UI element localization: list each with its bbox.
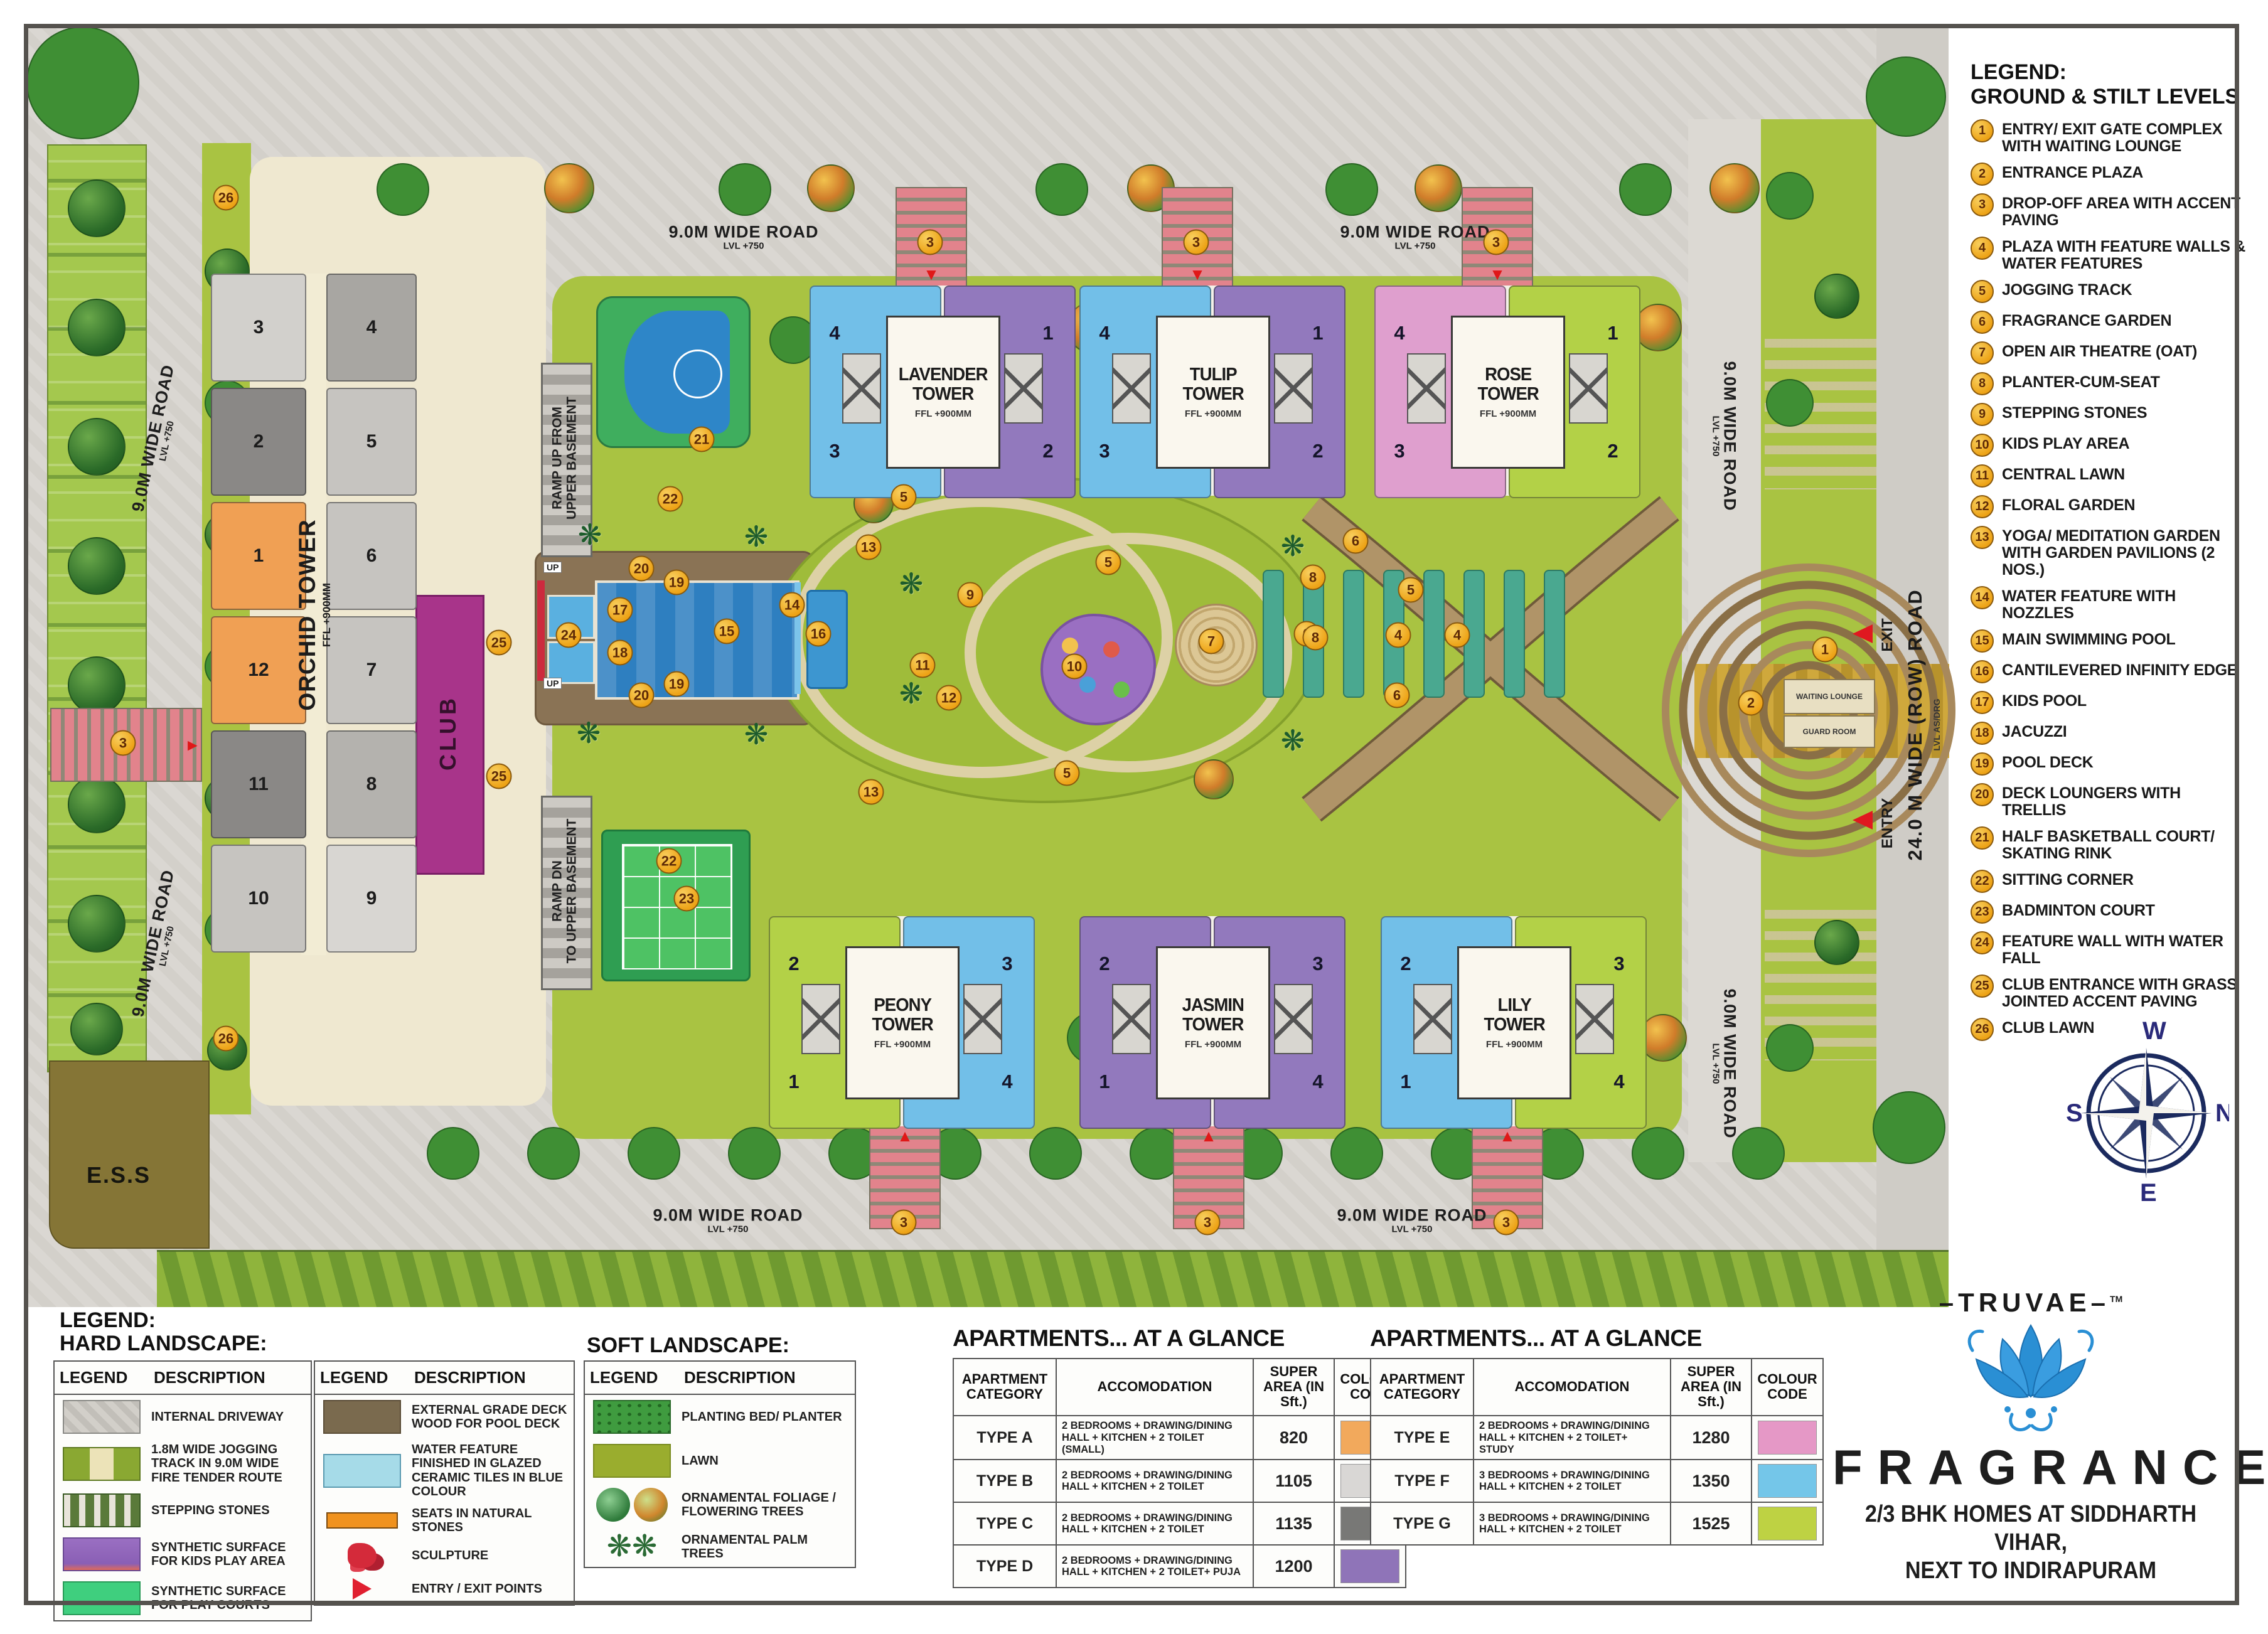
tree-icon (70, 1003, 123, 1055)
lotus-logo-icon (1959, 1320, 2103, 1439)
apartments-table-2: APARTMENTS... AT A GLANCEAPARTMENT CATEG… (1370, 1325, 1824, 1546)
tree-icon (1415, 164, 1462, 212)
apartments-row: TYPE D2 BEDROOMS + DRAWING/DINING HALL +… (953, 1545, 1406, 1588)
orchid-wing: 9 (326, 845, 417, 953)
plan-marker: 25 (486, 630, 512, 656)
road-label: 9.0M WIDE ROADLVL +750 (1711, 361, 1738, 511)
plan-marker: 10 (1062, 654, 1088, 680)
plan-marker: 19 (664, 570, 690, 595)
col-description: DESCRIPTION (679, 1362, 855, 1394)
tree-icon (1866, 56, 1946, 137)
super-area-cell: 1525 (1671, 1502, 1752, 1545)
tower-name: ROSETOWER (1477, 365, 1538, 403)
legend-item: 10KIDS PLAY AREA (1971, 434, 2245, 457)
legend-item-label: PLAZA WITH FEATURE WALLS & WATER FEATURE… (2002, 237, 2245, 272)
orchid-wing: 1 (211, 502, 306, 610)
super-area-cell: 1350 (1671, 1460, 1752, 1502)
category-cell: TYPE B (953, 1460, 1056, 1502)
legend-marker-icon: 13 (1971, 526, 1994, 549)
legend-row-label: LAWN (679, 1450, 855, 1471)
orchid-wing: 8 (326, 730, 417, 838)
legend-panel-header: LEGENDDESCRIPTION (585, 1362, 855, 1395)
soft-landscape-title: SOFT LANDSCAPE: (587, 1334, 789, 1357)
apartments-col-header: ACCOMODATION (1474, 1359, 1671, 1416)
hard-title-1: LEGEND: (60, 1309, 267, 1332)
legend-row-label: STEPPING STONES (149, 1500, 311, 1521)
entry-exit-arrow-icon (353, 1578, 372, 1599)
tower-lily-tower: LILYTOWERFFL +900MM2314 (1381, 916, 1644, 1126)
tower-core: TULIPTOWERFFL +900MM (1156, 316, 1270, 469)
plan-marker: 3 (917, 230, 943, 255)
tree-icon (68, 179, 126, 237)
planter-cum-seat (1544, 570, 1565, 698)
legend-marker-icon: 17 (1971, 691, 1994, 714)
legend-item: 2ENTRANCE PLAZA (1971, 163, 2245, 186)
tree-icon (728, 1127, 781, 1180)
legend-item: 15MAIN SWIMMING POOL (1971, 629, 2245, 653)
legend-item-label: JOGGING TRACK (2002, 280, 2132, 299)
tree-icon (807, 164, 855, 212)
soft-landscape-panel: LEGENDDESCRIPTIONPLANTING BED/ PLANTERLA… (584, 1360, 856, 1568)
palm-tree-icon: ❋ (899, 567, 924, 601)
guard-room: GUARD ROOM (1784, 715, 1875, 748)
apartments-table-1: APARTMENTS... AT A GLANCEAPARTMENT CATEG… (953, 1325, 1406, 1588)
tree-icon (1330, 1127, 1383, 1180)
apartments-col-header: COLOUR CODE (1752, 1359, 1823, 1416)
tower-core: ROSETOWERFFL +900MM (1451, 316, 1565, 469)
play-equipment-icon (1062, 638, 1078, 654)
palm-tree-icon: ❋ (578, 518, 602, 552)
road-label: 9.0M WIDE ROADLVL +750 (1711, 988, 1738, 1138)
plan-marker: 3 (110, 730, 136, 756)
wing-number: 1 (780, 1071, 808, 1093)
plan-marker: 23 (674, 886, 700, 912)
colour-code-swatch (1758, 1421, 1817, 1455)
plan-marker: 21 (689, 427, 715, 452)
lift-core-icon (1407, 353, 1446, 424)
plan-marker: 2 (1738, 690, 1764, 716)
legend-row-label: PLANTING BED/ PLANTER (679, 1406, 855, 1428)
plan-marker: 3 (891, 1210, 917, 1236)
legend-marker-icon: 26 (1971, 1018, 1994, 1041)
legend-row: LAWN (585, 1439, 855, 1483)
legend-item: 3DROP-OFF AREA WITH ACCENT PAVING (1971, 193, 2245, 229)
legend-item-label: HALF BASKETBALL COURT/ SKATING RINK (2002, 826, 2245, 862)
ess-area (49, 1060, 210, 1249)
plan-marker: 22 (656, 848, 682, 874)
legend-marker-icon: 6 (1971, 311, 1994, 334)
plan-marker: 3 (1184, 230, 1209, 255)
road-label: 9.0M WIDE ROADLVL +750 (1337, 1207, 1487, 1234)
ess-label: E.S.S (87, 1162, 151, 1188)
deck-swatch (323, 1400, 401, 1434)
legend-row-label: SEATS IN NATURAL STONES (409, 1503, 574, 1539)
wing-number: 1 (1392, 1071, 1420, 1093)
legend-item: 11CENTRAL LAWN (1971, 464, 2245, 488)
tree-icon (1619, 163, 1672, 216)
plan-marker: 6 (1384, 683, 1410, 708)
legend-marker-icon: 21 (1971, 826, 1994, 850)
legend-marker-icon: 18 (1971, 722, 1994, 745)
tower-core: PEONYTOWERFFL +900MM (845, 946, 960, 1099)
plan-marker: 3 (1195, 1210, 1221, 1236)
tree-icon (1709, 163, 1760, 213)
hard-title-2: HARD LANDSCAPE: (60, 1332, 267, 1355)
legend-item: 19POOL DECK (1971, 752, 2245, 776)
legend-item-label: MAIN SWIMMING POOL (2002, 629, 2176, 648)
legend-row-label: EXTERNAL GRADE DECK WOOD FOR POOL DECK (409, 1399, 574, 1435)
colour-cell (1752, 1416, 1823, 1460)
apartments-row: TYPE A2 BEDROOMS + DRAWING/DINING HALL +… (953, 1416, 1406, 1460)
drop-off-arrow-icon: ▲ (1499, 1128, 1516, 1144)
legend-swatch-cell: ❋❋ (585, 1527, 679, 1567)
basketball-center-circle (673, 350, 722, 398)
tree-icon (1873, 1091, 1945, 1164)
legend-row-label: WATER FEATURE FINISHED IN GLAZED CERAMIC… (409, 1439, 574, 1503)
legend-item-label: CANTILEVERED INFINITY EDGE (2002, 660, 2237, 679)
plan-marker: 24 (556, 622, 582, 648)
plan-marker: 5 (1096, 550, 1121, 575)
tree-icon (1732, 1127, 1785, 1180)
legend-marker-icon: 22 (1971, 870, 1994, 893)
lift-core-icon (1112, 984, 1151, 1054)
apartments-table-title: APARTMENTS... AT A GLANCE (953, 1325, 1406, 1352)
road-label: 9.0M WIDE ROADLVL +750 (653, 1207, 803, 1234)
tree-icon (1634, 304, 1682, 351)
tower-rose-tower: ROSETOWERFFL +900MM4132 (1374, 286, 1638, 496)
tower-name: LILYTOWER (1484, 996, 1544, 1033)
legend-item-label: JACUZZI (2002, 722, 2067, 740)
lift-core-icon (1274, 353, 1313, 424)
legend-row: STEPPING STONES (55, 1488, 311, 1532)
tree-icon (1325, 163, 1378, 216)
plan-marker: 7 (1199, 629, 1224, 654)
hard-landscape-panel-1: LEGENDDESCRIPTIONINTERNAL DRIVEWAY1.8M W… (53, 1360, 312, 1621)
plan-marker: 17 (607, 597, 633, 623)
wing-number: 2 (780, 953, 808, 975)
south-tree-band (157, 1250, 1949, 1307)
apartments-row: TYPE E2 BEDROOMS + DRAWING/DINING HALL +… (1371, 1416, 1823, 1460)
legend-marker-icon: 11 (1971, 464, 1994, 488)
legend-item: 6FRAGRANCE GARDEN (1971, 311, 2245, 334)
accommodation-cell: 2 BEDROOMS + DRAWING/DINING HALL + KITCH… (1056, 1545, 1253, 1588)
play-equipment-icon (1103, 641, 1120, 658)
col-description: DESCRIPTION (409, 1362, 574, 1394)
legend-swatch-cell (55, 1395, 149, 1439)
wing-number: 4 (1386, 322, 1413, 344)
ramp-down-label: RAMP DNTO UPPER BASEMENT (550, 819, 579, 964)
legend-item-label: PLANTER-CUM-SEAT (2002, 372, 2160, 391)
legend-item: 13YOGA/ MEDITATION GARDEN WITH GARDEN PA… (1971, 526, 2245, 579)
legend-item-label: YOGA/ MEDITATION GARDEN WITH GARDEN PAVI… (2002, 526, 2245, 579)
legend-row: SYNTHETIC SURFACE FOR KIDS PLAY AREA (55, 1532, 311, 1576)
exit-label: EXIT (1879, 618, 1896, 651)
entry-label: ENTRY (1879, 798, 1896, 848)
project-name: FRAGRANCE (1832, 1443, 2237, 1492)
super-area-cell: 1135 (1253, 1502, 1334, 1545)
tree-icon (544, 163, 594, 213)
courts-swatch (63, 1581, 141, 1615)
legend-item-label: FEATURE WALL WITH WATER FALL (2002, 931, 2245, 967)
planter-cum-seat (1423, 570, 1445, 698)
tree-icon (1029, 1127, 1082, 1180)
planter-cum-seat (1343, 570, 1364, 698)
legend-marker-icon: 19 (1971, 752, 1994, 776)
tower-tulip-tower: TULIPTOWERFFL +900MM4132 (1079, 286, 1343, 496)
tree-icon (377, 163, 429, 216)
legend-item: 4PLAZA WITH FEATURE WALLS & WATER FEATUR… (1971, 237, 2245, 272)
legend-item: 8PLANTER-CUM-SEAT (1971, 372, 2245, 395)
apartments-col-header: ACCOMODATION (1056, 1359, 1253, 1416)
driveway-swatch (63, 1400, 141, 1434)
plan-marker: 19 (664, 671, 690, 697)
legend-row: SCULPTURE (315, 1538, 574, 1573)
legend-marker-icon: 16 (1971, 660, 1994, 683)
ramp-up-label: RAMP UP FROMUPPER BASEMENT (550, 397, 579, 520)
tower-name: LAVENDERTOWER (899, 365, 988, 403)
palm-tree-icon: ❋❋ (607, 1532, 657, 1562)
wing-number: 3 (1304, 953, 1332, 975)
legend-item-label: FLORAL GARDEN (2002, 495, 2135, 514)
legend-item-label: KIDS PLAY AREA (2002, 434, 2129, 452)
legend-marker-icon: 14 (1971, 586, 1994, 609)
legend-marker-icon: 2 (1971, 163, 1994, 186)
plan-marker: 3 (1494, 1210, 1519, 1236)
tower-core: LILYTOWERFFL +900MM (1457, 946, 1571, 1099)
branding: –TRUVAE–TM FRAGRANCE 2/3 BHK HOMES AT SI… (1825, 1288, 2237, 1584)
legend-item: 24FEATURE WALL WITH WATER FALL (1971, 931, 2245, 967)
apartments-col-header: SUPER AREA (IN Sft.) (1671, 1359, 1752, 1416)
wing-number: 3 (993, 953, 1021, 975)
plan-marker: 8 (1303, 625, 1329, 651)
tower-jasmin-tower: JASMINTOWERFFL +900MM2314 (1079, 916, 1343, 1126)
compass-e: E (2140, 1179, 2157, 1206)
apartments-row: TYPE F3 BEDROOMS + DRAWING/DINING HALL +… (1371, 1460, 1823, 1502)
colour-code-swatch (1758, 1464, 1817, 1498)
tree-icon (1766, 1024, 1814, 1072)
super-area-cell: 1105 (1253, 1460, 1334, 1502)
lift-core-icon (842, 353, 881, 424)
entry-arrow-icon (1853, 811, 1873, 830)
plan-marker: 18 (607, 640, 633, 666)
palm-tree-icon: ❋ (744, 520, 769, 553)
tower-ffl: FFL +900MM (1486, 1039, 1543, 1050)
step-swatch (63, 1493, 141, 1527)
wing-number: 3 (821, 440, 848, 462)
colour-cell (1752, 1460, 1823, 1502)
super-area-cell: 1200 (1253, 1545, 1334, 1588)
legend-item: 14WATER FEATURE WITH NOZZLES (1971, 586, 2245, 622)
category-cell: TYPE C (953, 1502, 1056, 1545)
legend-item: 16CANTILEVERED INFINITY EDGE (1971, 660, 2245, 683)
orchid-wing: 12 (211, 616, 306, 724)
plan-marker: 26 (213, 1026, 239, 1052)
wing-number: 2 (1091, 953, 1118, 975)
plan-marker: 22 (658, 486, 683, 512)
plan-marker: 4 (1386, 622, 1411, 648)
plan-marker: 1 (1812, 637, 1838, 663)
plan-marker: 12 (936, 685, 962, 711)
legend-row: SYNTHETIC SURFACE FOR PLAY COURTS (55, 1576, 311, 1620)
half-basketball-court (596, 296, 751, 448)
orchid-wing: 10 (211, 845, 306, 953)
legend-item-label: SITTING CORNER (2002, 870, 2134, 889)
plan-marker: 5 (1054, 761, 1080, 786)
planter-cum-seat (1263, 570, 1284, 698)
legend-marker-icon: 7 (1971, 341, 1994, 365)
drop-off-arrow-icon: ► (185, 737, 201, 753)
tree-icon (719, 163, 771, 216)
wing-number: 2 (1304, 440, 1332, 462)
tower-ffl: FFL +900MM (1185, 1039, 1241, 1050)
legend-marker-icon: 24 (1971, 931, 1994, 954)
compass-n: N (2215, 1099, 2229, 1127)
wing-number: 2 (1392, 953, 1420, 975)
plan-marker: 11 (910, 653, 936, 678)
developer-logo: –TRUVAE–TM (1825, 1288, 2237, 1318)
legend-row-label: SCULPTURE (409, 1545, 574, 1566)
legend-item: 23BADMINTON COURT (1971, 900, 2245, 924)
legend-panel-header: LEGENDDESCRIPTION (55, 1362, 311, 1395)
plan-marker: 6 (1343, 528, 1369, 554)
tree-icon (68, 418, 126, 476)
tower-peony-tower: PEONYTOWERFFL +900MM2314 (769, 916, 1032, 1126)
legend-marker-icon: 9 (1971, 403, 1994, 426)
orchid-wing: 3 (211, 274, 306, 382)
lift-core-icon (1413, 984, 1452, 1054)
tree-icon (68, 776, 126, 833)
plan-marker: 5 (891, 484, 917, 510)
legend-swatch-cell (585, 1483, 679, 1527)
col-description: DESCRIPTION (149, 1362, 311, 1394)
legend-swatch-cell (315, 1538, 409, 1573)
tree-icon (628, 1127, 680, 1180)
legend-marker-icon: 23 (1971, 900, 1994, 924)
hard-landscape-title: LEGEND: HARD LANDSCAPE: (60, 1309, 267, 1356)
palm-tree-icon: ❋ (744, 717, 769, 751)
road-label: 9.0M WIDE ROADLVL +750 (1340, 224, 1490, 251)
plan-marker: 26 (213, 185, 239, 211)
lift-core-icon (1575, 984, 1614, 1054)
drop-off-arrow-icon: ▼ (1189, 266, 1206, 282)
legend-marker-icon: 10 (1971, 434, 1994, 457)
lift-core-icon (1274, 984, 1313, 1054)
accommodation-cell: 2 BEDROOMS + DRAWING/DINING HALL + KITCH… (1474, 1416, 1671, 1460)
compass-rose: W N E S (2066, 1018, 2229, 1206)
colour-cell (1334, 1545, 1406, 1588)
accommodation-cell: 2 BEDROOMS + DRAWING/DINING HALL + KITCH… (1056, 1416, 1253, 1460)
lift-core-icon (963, 984, 1002, 1054)
legend-swatch-cell (55, 1532, 149, 1576)
legend-item-label: STEPPING STONES (2002, 403, 2147, 422)
legend-row-label: ORNAMENTAL FOLIAGE / FLOWERING TREES (679, 1487, 855, 1523)
legend-item-label: BADMINTON COURT (2002, 900, 2155, 919)
legend-row: EXTERNAL GRADE DECK WOOD FOR POOL DECK (315, 1395, 574, 1439)
legend-marker-icon: 5 (1971, 280, 1994, 303)
palm-tree-icon: ❋ (1281, 724, 1305, 757)
tower-name: TULIPTOWER (1182, 365, 1243, 403)
category-cell: TYPE A (953, 1416, 1056, 1460)
legend-item: 5JOGGING TRACK (1971, 280, 2245, 303)
sculpture-icon (348, 1543, 377, 1568)
category-cell: TYPE G (1371, 1502, 1474, 1545)
category-cell: TYPE E (1371, 1416, 1474, 1460)
legend-row: ❋❋ORNAMENTAL PALM TREES (585, 1527, 855, 1567)
legend-item-label: ENTRANCE PLAZA (2002, 163, 2143, 181)
legend-row-label: 1.8M WIDE JOGGING TRACK IN 9.0M WIDE FIR… (149, 1439, 311, 1488)
plan-marker: 4 (1445, 622, 1470, 648)
legend-marker-icon: 3 (1971, 193, 1994, 216)
tree-icon (1194, 759, 1234, 799)
legend-item-label: OPEN AIR THEATRE (OAT) (2002, 341, 2197, 360)
foliage-tree-icon (596, 1488, 630, 1522)
plan-marker: 13 (859, 779, 884, 805)
row-road-sub-label: LVL AS/DRG (1932, 699, 1942, 751)
wing-number: 1 (1091, 1071, 1118, 1093)
super-area-cell: 1280 (1671, 1416, 1752, 1460)
tree-icon (1766, 172, 1814, 220)
apartments-col-header: APARTMENT CATEGORY (1371, 1359, 1474, 1416)
wing-number: 3 (1605, 953, 1633, 975)
lawn-swatch (593, 1444, 671, 1478)
apartments-row: TYPE G3 BEDROOMS + DRAWING/DINING HALL +… (1371, 1502, 1823, 1545)
tower-ffl: FFL +900MM (1185, 408, 1241, 419)
plan-marker: 14 (779, 592, 805, 618)
developer-name: –TRUVAE– (1939, 1288, 2110, 1317)
legend-row: SEATS IN NATURAL STONES (315, 1503, 574, 1539)
play-equipment-icon (1113, 681, 1130, 698)
palm-tree-icon: ❋ (899, 676, 924, 710)
tower-lavender-tower: LAVENDERTOWERFFL +900MM4132 (810, 286, 1073, 496)
plan-marker: 20 (629, 556, 655, 582)
club-label: CLUB (435, 695, 461, 771)
seats-swatch (326, 1512, 398, 1529)
drop-off-arrow-icon: ▼ (923, 266, 939, 282)
plan-marker: 13 (856, 535, 882, 560)
water-swatch (323, 1454, 401, 1488)
palm-tree-icon: ❋ (577, 716, 601, 750)
category-cell: TYPE D (953, 1545, 1056, 1588)
legend-swatch-cell (585, 1395, 679, 1439)
legend-marker-icon: 25 (1971, 975, 1994, 998)
apartments-row: TYPE B2 BEDROOMS + DRAWING/DINING HALL +… (953, 1460, 1406, 1502)
legend-row: PLANTING BED/ PLANTER (585, 1395, 855, 1439)
legend-swatch-cell (315, 1507, 409, 1534)
legend-row: INTERNAL DRIVEWAY (55, 1395, 311, 1439)
tagline-1: 2/3 BHK HOMES AT SIDDHARTH VIHAR, (1846, 1500, 2216, 1557)
col-legend: LEGEND (585, 1362, 679, 1394)
wing-number: 1 (1034, 322, 1062, 344)
tree-icon (1035, 163, 1088, 216)
legend-item: 22SITTING CORNER (1971, 870, 2245, 893)
legend-marker-icon: 4 (1971, 237, 1994, 260)
legend-marker-icon: 15 (1971, 629, 1994, 653)
up-label: UP (543, 562, 562, 573)
legend-swatch-cell (55, 1442, 149, 1486)
legend-item-label: WATER FEATURE WITH NOZZLES (2002, 586, 2245, 622)
legend-item-label: ENTRY/ EXIT GATE COMPLEX WITH WAITING LO… (2002, 119, 2245, 155)
waiting-lounge: WAITING LOUNGE (1784, 679, 1875, 714)
tower-core: JASMINTOWERFFL +900MM (1156, 946, 1270, 1099)
orchid-wing: 6 (326, 502, 417, 610)
tree-icon (68, 656, 126, 714)
plant-swatch (593, 1400, 671, 1434)
legend-item-label: POOL DECK (2002, 752, 2093, 771)
accommodation-cell: 2 BEDROOMS + DRAWING/DINING HALL + KITCH… (1056, 1502, 1253, 1545)
legend-row-label: SYNTHETIC SURFACE FOR PLAY COURTS (149, 1581, 311, 1616)
legend-row: ORNAMENTAL FOLIAGE / FLOWERING TREES (585, 1483, 855, 1527)
col-legend: LEGEND (55, 1362, 149, 1394)
